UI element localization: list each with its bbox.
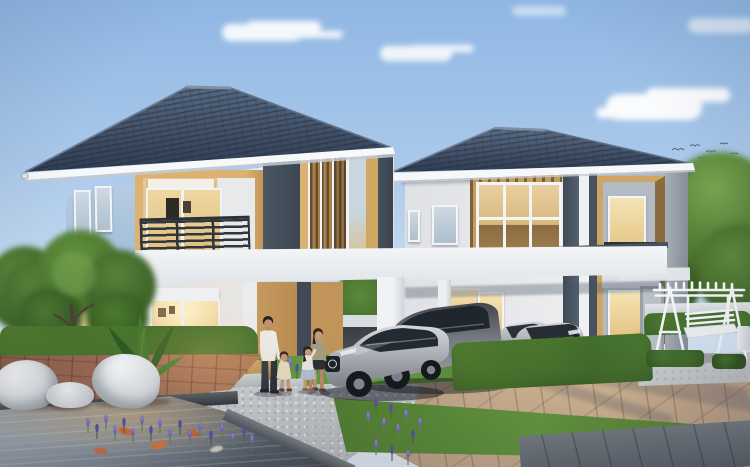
family: [248, 308, 348, 403]
hedge-box: [712, 354, 746, 369]
cloud: [380, 46, 452, 61]
picture-frame: [183, 201, 191, 213]
father: [260, 316, 283, 394]
lavender-cluster: [86, 415, 253, 450]
balcony-railing: [140, 216, 251, 255]
cloud: [606, 94, 702, 120]
window: [408, 210, 420, 242]
lounge-table: [46, 382, 94, 408]
cloud: [688, 18, 750, 33]
scene-architectural-rendering: [0, 0, 750, 467]
house-left-roof: [10, 78, 410, 188]
cloud: [512, 6, 566, 16]
house-right-roof: [375, 118, 705, 190]
hedge-box: [646, 350, 704, 367]
tree-canopy: [52, 252, 96, 296]
lavender-cluster: [366, 398, 421, 465]
window: [95, 186, 113, 232]
cloud: [222, 24, 302, 41]
window: [432, 205, 458, 245]
white-planter: [737, 326, 750, 350]
picture-frame: [166, 198, 179, 218]
